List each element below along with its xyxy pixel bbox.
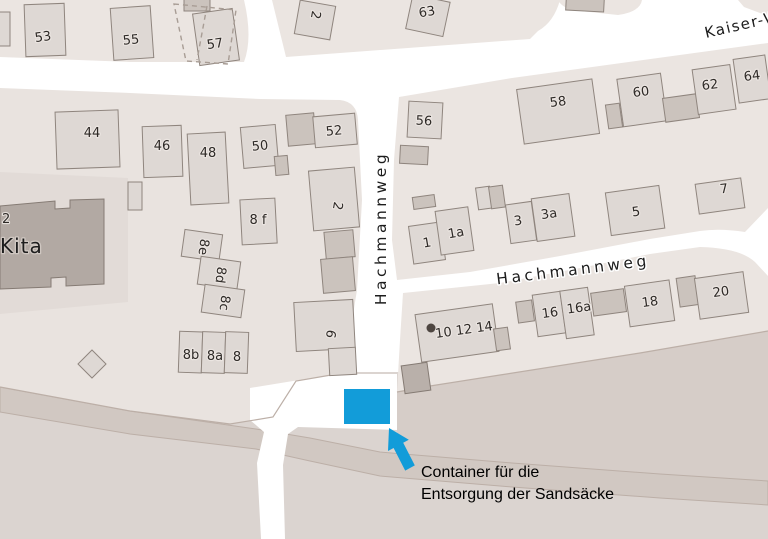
house-number-20: 20 xyxy=(712,284,730,301)
house-number-62: 62 xyxy=(701,77,719,94)
container-location-marker[interactable] xyxy=(344,389,390,424)
building xyxy=(274,155,289,175)
house-number-60: 60 xyxy=(632,84,650,101)
house-number-50: 50 xyxy=(251,138,269,154)
kita-housenumber-label: 2 xyxy=(2,212,10,227)
building xyxy=(516,300,535,323)
building xyxy=(400,145,429,164)
building xyxy=(286,113,317,146)
house-number-46: 46 xyxy=(154,139,171,154)
building xyxy=(324,230,355,259)
map-svg: 53 55 57 2 63 44 46 48 50 52 8 f 8e 8d 8… xyxy=(0,0,768,539)
building xyxy=(566,0,605,12)
house-number-1a: 1a xyxy=(447,225,466,243)
house-number-56: 56 xyxy=(415,114,432,130)
house-number-63: 63 xyxy=(418,4,437,22)
annotation-line-2: Entsorgung der Sandsäcke xyxy=(421,486,614,503)
building xyxy=(605,103,622,129)
building xyxy=(662,94,699,122)
building xyxy=(412,195,435,210)
house-number-44: 44 xyxy=(84,126,101,141)
building-2-top xyxy=(294,0,335,40)
kita-label: Kita xyxy=(0,234,43,258)
street-label-kaiser: Kaiser-W xyxy=(703,7,768,42)
house-number-8: 8 xyxy=(233,350,241,365)
house-number-8e: 8e xyxy=(195,238,212,256)
house-number-64: 64 xyxy=(743,68,761,85)
poi-dot-icon xyxy=(427,324,436,333)
house-number-57: 57 xyxy=(206,36,224,53)
house-number-8a: 8a xyxy=(207,349,223,364)
building xyxy=(591,289,627,316)
building-2-mid xyxy=(308,167,359,231)
house-number-55: 55 xyxy=(122,32,140,48)
building-6-annex xyxy=(328,347,356,375)
house-number-8b: 8b xyxy=(183,348,200,363)
house-number-18: 18 xyxy=(641,294,659,311)
house-number-8c: 8c xyxy=(216,294,233,311)
annotation-line-1: Container für die xyxy=(421,464,539,481)
house-number-8f: 8 f xyxy=(250,213,267,228)
house-number-8d: 8d xyxy=(212,266,229,284)
building-48 xyxy=(187,132,229,205)
building xyxy=(489,185,506,209)
building xyxy=(0,12,10,46)
house-number-58: 58 xyxy=(549,94,567,111)
map-canvas[interactable]: 53 55 57 2 63 44 46 48 50 52 8 f 8e 8d 8… xyxy=(0,0,768,539)
building xyxy=(494,327,511,351)
house-number-3a: 3a xyxy=(540,206,558,223)
street-label-hachmannweg-vertical: Hachmannweg xyxy=(372,151,390,305)
building-6 xyxy=(294,299,355,351)
house-number-53: 53 xyxy=(34,29,52,46)
house-number-52: 52 xyxy=(325,123,343,139)
building xyxy=(128,182,142,210)
house-number-48: 48 xyxy=(200,146,217,161)
building-58 xyxy=(517,79,600,144)
building-60 xyxy=(617,73,667,127)
house-number-16: 16 xyxy=(541,305,559,322)
building xyxy=(321,257,356,294)
building xyxy=(401,362,431,393)
